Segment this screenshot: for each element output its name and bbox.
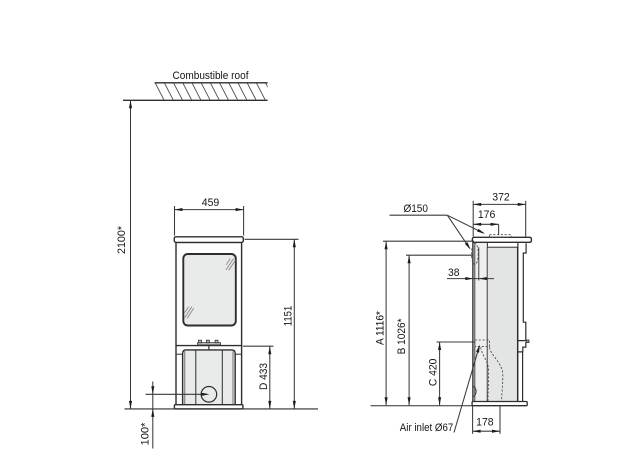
svg-text:D 433: D 433 <box>258 363 270 390</box>
svg-text:B 1026*: B 1026* <box>396 318 408 355</box>
svg-text:100*: 100* <box>139 422 151 446</box>
svg-text:178: 178 <box>476 416 494 428</box>
svg-text:C 420: C 420 <box>427 359 439 387</box>
svg-text:Air inlet Ø67: Air inlet Ø67 <box>400 422 454 434</box>
svg-text:2100*: 2100* <box>116 225 128 254</box>
svg-text:Combustible roof: Combustible roof <box>173 70 250 82</box>
svg-text:1151: 1151 <box>283 306 295 327</box>
svg-text:38: 38 <box>448 267 460 279</box>
svg-text:Ø150: Ø150 <box>403 203 428 215</box>
svg-text:A 1116*: A 1116* <box>375 310 387 345</box>
svg-text:372: 372 <box>492 191 510 203</box>
svg-text:459: 459 <box>202 197 220 209</box>
svg-text:176: 176 <box>478 209 496 221</box>
